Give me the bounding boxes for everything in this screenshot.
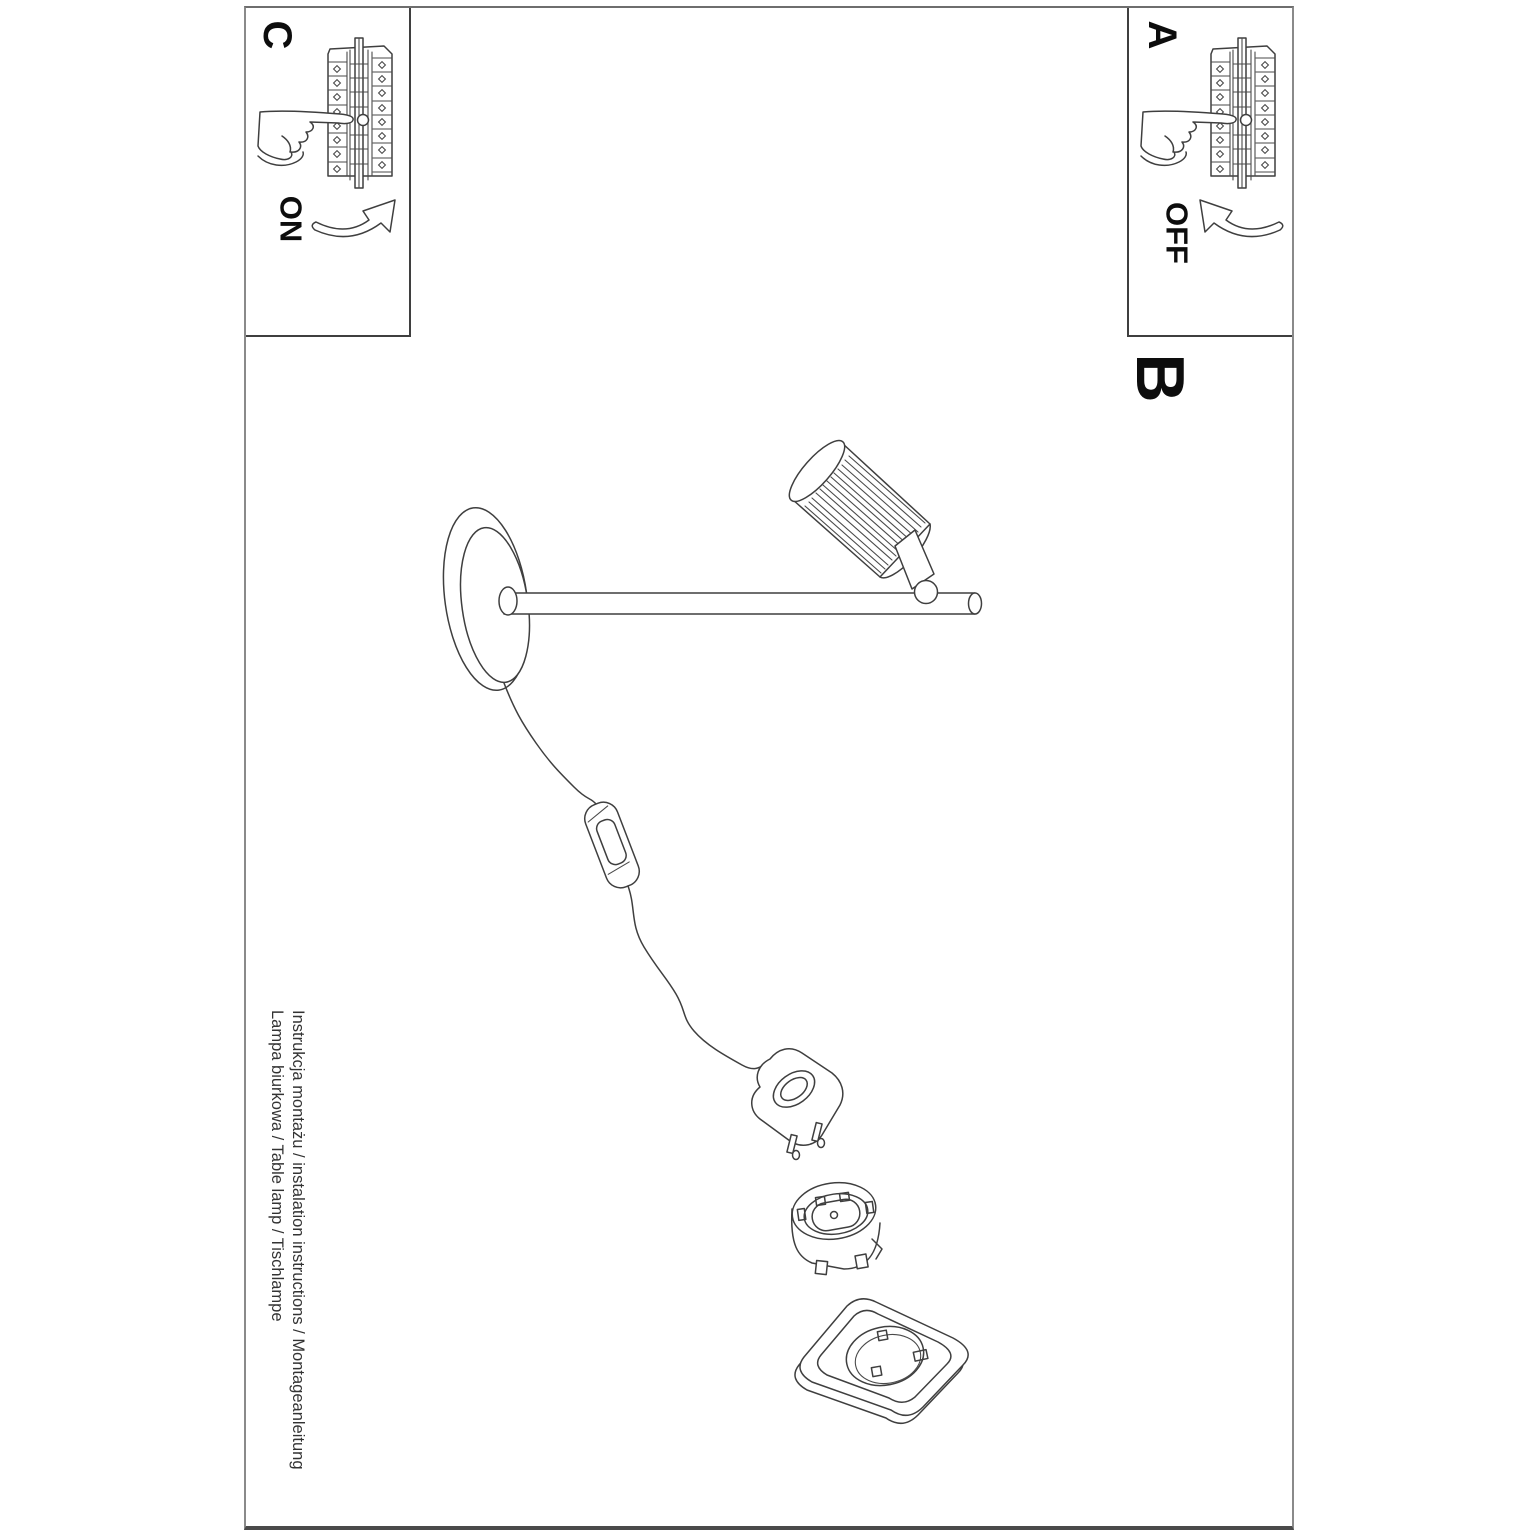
- document-title-rotated: Instrukcja montażu / instalation instruc…: [266, 1010, 308, 1470]
- socket-insert-icon: [789, 1177, 882, 1274]
- title-line-1: Instrukcja montażu / instalation instruc…: [287, 1010, 308, 1470]
- step-label-b: B: [1126, 353, 1194, 402]
- step-box-c: C ON: [246, 8, 411, 337]
- step-label-a: A: [1142, 21, 1182, 50]
- on-label: ON: [276, 196, 307, 243]
- wall-socket-icon: [795, 1299, 968, 1424]
- step-label-c: C: [257, 21, 297, 50]
- lamp-shade: [781, 433, 937, 603]
- euro-plug-icon: [752, 1049, 843, 1160]
- instruction-sheet-canvas: C ON A OFF B Instrukcja montażu / instal…: [0, 0, 1540, 1540]
- curved-arrow-on-icon: [312, 200, 395, 237]
- power-cord-upper: [504, 683, 596, 804]
- ball-joint: [915, 581, 938, 604]
- inline-switch-icon: [580, 798, 643, 892]
- power-cord-lower: [628, 886, 770, 1069]
- lamp-arm-rod: [499, 587, 982, 615]
- step-box-a: A OFF: [1127, 8, 1292, 337]
- step-a-graphic: [1129, 8, 1294, 337]
- off-label: OFF: [1162, 202, 1193, 264]
- title-line-2: Lampa biurkowa / Table lamp / Tischlampe: [266, 1010, 287, 1470]
- step-c-graphic: [246, 8, 411, 337]
- curved-arrow-off-icon: [1200, 200, 1283, 237]
- instruction-page: C ON A OFF B Instrukcja montażu / instal…: [244, 6, 1294, 1530]
